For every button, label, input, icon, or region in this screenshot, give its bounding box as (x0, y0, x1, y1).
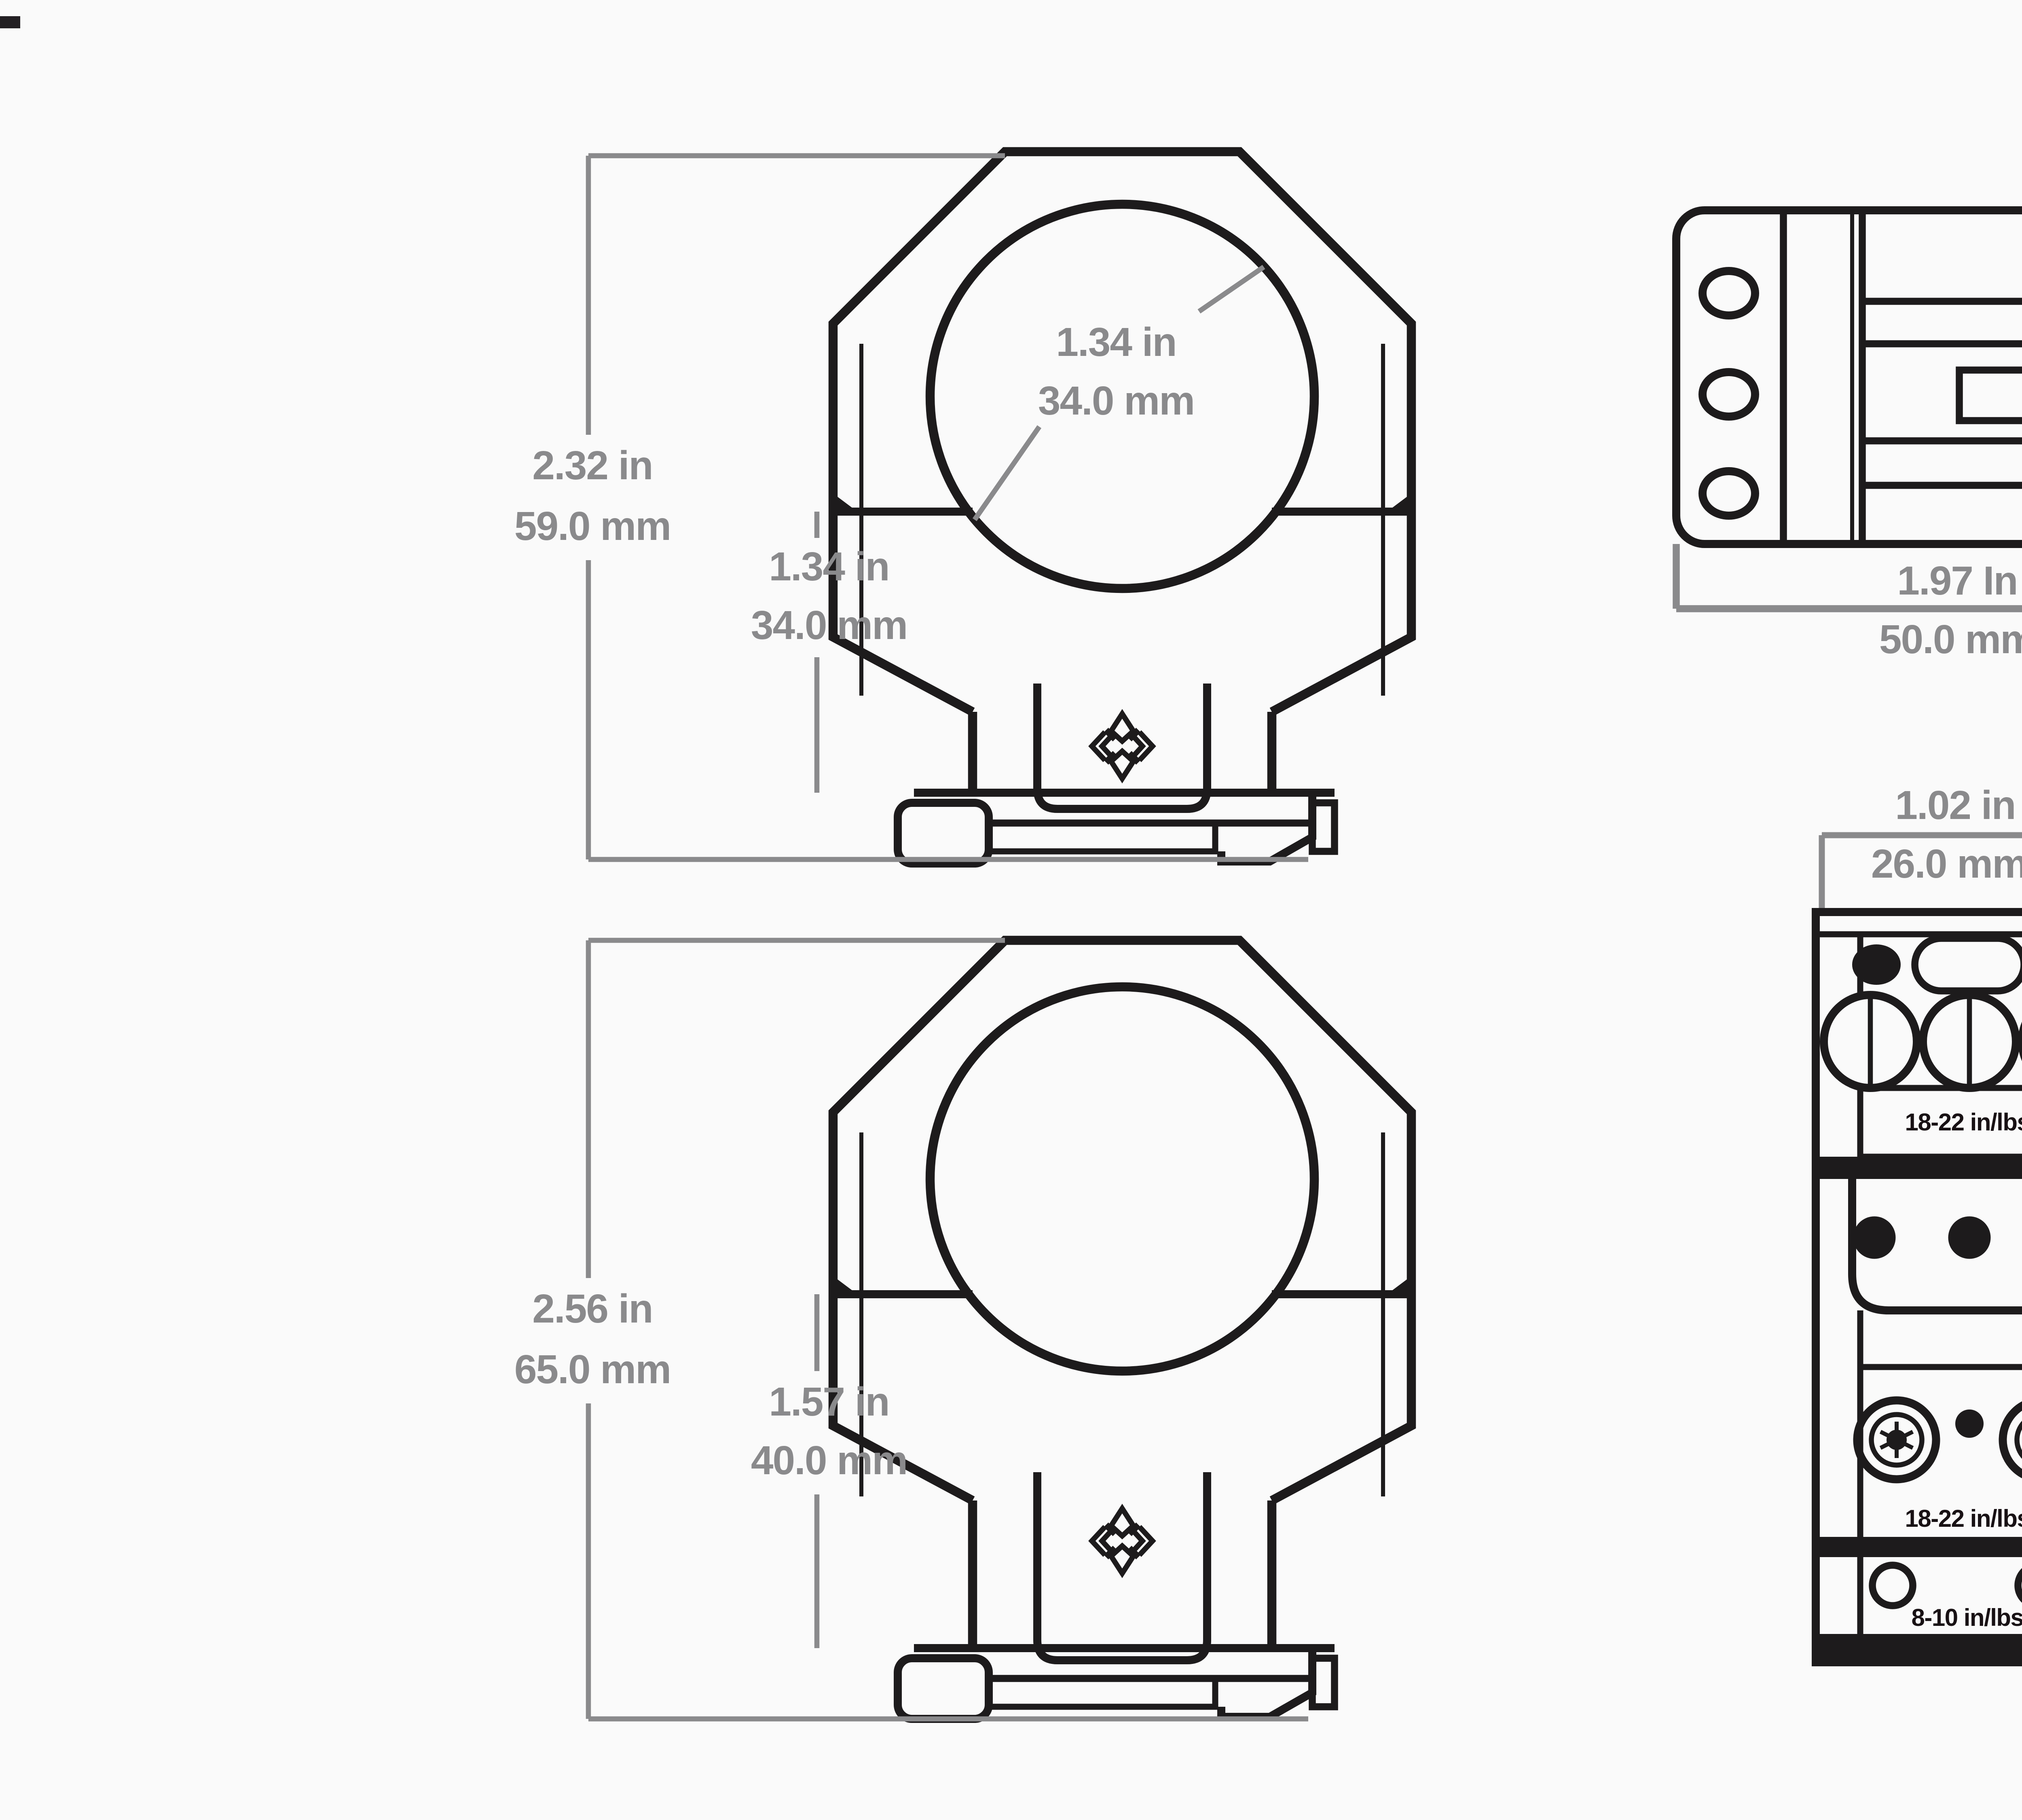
ring1-height-label-mm: 59.0 mm (481, 508, 704, 548)
mount-cross-rails (1862, 301, 2022, 485)
screw-dot (1853, 1217, 1896, 1259)
torque-label-small: 8-10 in/lbs (1862, 1606, 2022, 1632)
ring1-saddle-label-in: 1.34 in (718, 548, 940, 588)
pin-hole-filled (1852, 944, 1901, 985)
rail-slot (989, 1678, 1215, 1707)
bottom-bar (1816, 1634, 2022, 1662)
screw-hole (1703, 372, 1755, 417)
diagram-canvas: 1.34 in 34.0 mm 2.32 in 59.0 mm 1.34 in … (0, 0, 2022, 1820)
screw-hole (1703, 271, 1755, 315)
recoil-lug-slot (1959, 370, 2022, 421)
ring1-height-label-in: 2.32 in (481, 447, 704, 487)
rail-foot-right (1221, 793, 1312, 861)
clamp-plate (898, 803, 989, 863)
saddle-channel (1037, 1472, 1207, 1660)
set-screw-hole (1872, 1565, 1913, 1606)
clamp-plate (898, 1658, 989, 1719)
torx-screw (1857, 1401, 1936, 1479)
ring1-bore-label-mm: 34.0 mm (1005, 382, 1227, 423)
edge-artifact (0, 16, 20, 28)
rail-foot-right (1221, 1648, 1312, 1717)
torque-label-mid: 18-22 in/lbs (1862, 1507, 2022, 1533)
sideview-width-label-mm: 26.0 mm (1838, 845, 2022, 886)
ring1-saddle-label-mm: 34.0 mm (718, 607, 940, 647)
set-screw-hole (2018, 1565, 2022, 1606)
ring2-height-label-mm: 65.0 mm (481, 1351, 704, 1391)
clamp-screw-heads (1824, 995, 2022, 1088)
screw-dot (1948, 1217, 1991, 1259)
ring2-saddle-label-mm: 40.0 mm (718, 1442, 940, 1482)
divider-band (1816, 1157, 2022, 1179)
torque-label-clamp: 18-22 in/lbs (1862, 1110, 2022, 1136)
ring2-saddle-label-in: 1.57 in (718, 1383, 940, 1424)
ring2-height-label-in: 2.56 in (481, 1290, 704, 1331)
center-pin-dot (1955, 1409, 1984, 1438)
ring-front-view-low (588, 152, 1411, 863)
topview-width-label-in: 1.97 In (1846, 562, 2022, 603)
screw-hole (1703, 471, 1755, 516)
ring1-bore-label-in: 1.34 in (1005, 324, 1227, 364)
mount-top-view (1676, 210, 2022, 609)
divider-band (1816, 1537, 2022, 1557)
mount-thin-lines (1852, 210, 2022, 544)
topview-width-label-mm: 50.0 mm (1846, 621, 2022, 661)
linework-layer (0, 0, 2022, 1820)
rail-slot (989, 823, 1215, 851)
brand-star-icon (1092, 1509, 1153, 1573)
brand-star-icon (1092, 714, 1153, 779)
sideview-width-label-in: 1.02 in (1844, 787, 2022, 827)
pill-slot (1915, 938, 2022, 991)
torx-screw (2003, 1401, 2022, 1479)
zoom-scaler: 1.34 in 34.0 mm 2.32 in 59.0 mm 1.34 in … (0, 0, 2022, 1820)
mount-outline (1676, 210, 2022, 544)
mount-end-view (1816, 835, 2022, 1662)
ring-front-view-high (588, 940, 1411, 1719)
ring-bore-circle (930, 987, 1314, 1371)
mount-section-lines (1783, 210, 2022, 544)
